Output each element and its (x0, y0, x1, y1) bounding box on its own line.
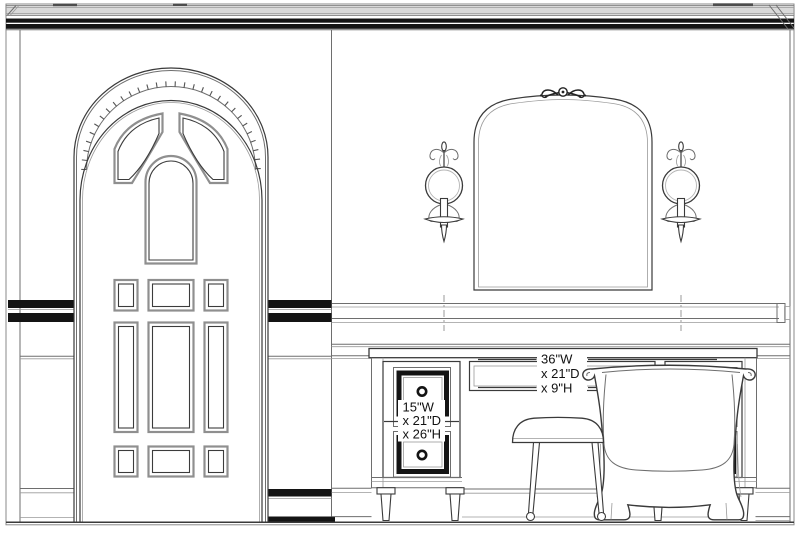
drawer-knob-icon (418, 451, 426, 459)
arched-panel-door (74, 68, 268, 522)
door-fan-panel-right (180, 114, 228, 184)
sconce-left (425, 142, 463, 331)
dim-36w-line3: x 9"H (541, 381, 572, 396)
door-panels (115, 280, 228, 477)
mirror-crest-ornament (540, 88, 586, 98)
crown-molding (6, 3, 794, 30)
wall-mirror (474, 88, 652, 290)
elevation-drawing: 36"W x 21"D x 9"H 15"W x 21"D x 26"H (0, 0, 800, 534)
arch-band (87, 87, 256, 170)
freestanding-bathtub (583, 365, 755, 520)
door-arch-panel (146, 156, 197, 263)
vanity-stool (513, 417, 606, 520)
dim-36w-line1: 36"W (541, 352, 573, 367)
left-pier-trim (8, 300, 74, 518)
right-section-chair-rail (332, 304, 791, 323)
door-fan-panel-left (115, 114, 163, 184)
dim-15w-line3: x 26"H (403, 427, 442, 442)
sconce-right (662, 142, 700, 331)
stool-leg (592, 443, 604, 514)
stool-leg (529, 443, 540, 514)
drawer-knob-icon (418, 387, 426, 395)
right-pier-trim (268, 300, 335, 523)
dim-36w-line2: x 21"D (541, 366, 580, 381)
